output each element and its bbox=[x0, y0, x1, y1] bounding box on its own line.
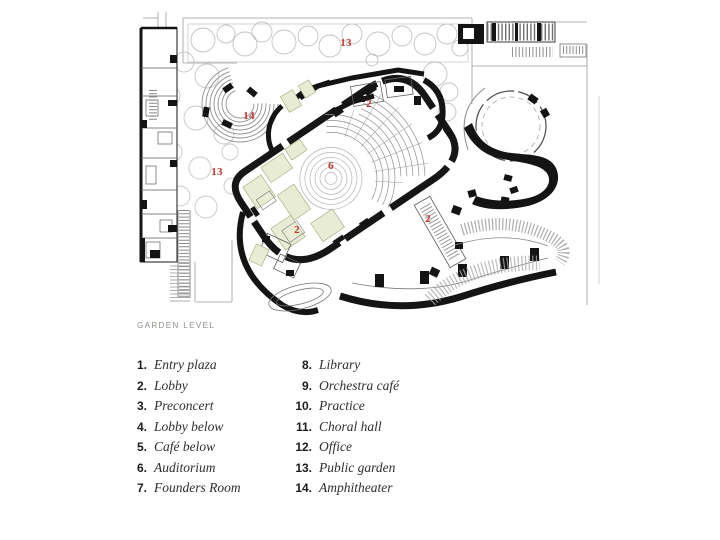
right-drum bbox=[464, 88, 558, 209]
legend-item-label: Choral hall bbox=[319, 419, 382, 435]
legend-item-number: 10. bbox=[288, 399, 312, 413]
legend-item-label: Founders Room bbox=[154, 480, 241, 496]
floor-plan-drawing bbox=[130, 10, 600, 335]
legend-item: 2.Lobby bbox=[130, 378, 290, 399]
stair-hatch bbox=[178, 210, 190, 302]
plan-number-label: 13 bbox=[340, 37, 352, 49]
top-right-structures bbox=[458, 22, 586, 57]
legend-item-label: Lobby bbox=[154, 378, 188, 394]
plan-number-label: 14 bbox=[243, 110, 255, 122]
legend-column-1: 1.Entry plaza 2.Lobby 3.Preconcert 4.Lob… bbox=[130, 357, 290, 501]
legend-item: 7.Founders Room bbox=[130, 480, 290, 501]
floor-plan: 13 2 14 13 6 2 2 bbox=[130, 10, 600, 335]
legend-item: 4.Lobby below bbox=[130, 419, 290, 440]
legend-item: 9.Orchestra café bbox=[288, 378, 458, 399]
legend-item-number: 8. bbox=[288, 358, 312, 372]
legend-item-label: Entry plaza bbox=[154, 357, 217, 373]
plan-number-label: 2 bbox=[294, 224, 300, 236]
legend-item-number: 7. bbox=[130, 481, 147, 495]
legend-item: 1.Entry plaza bbox=[130, 357, 290, 378]
legend-item-number: 13. bbox=[288, 461, 312, 475]
legend-item-label: Library bbox=[319, 357, 360, 373]
legend-item-number: 14. bbox=[288, 481, 312, 495]
legend-item: 12.Office bbox=[288, 439, 458, 460]
legend-item-number: 1. bbox=[130, 358, 147, 372]
auditorium-shape bbox=[200, 31, 487, 309]
legend-item: 5.Café below bbox=[130, 439, 290, 460]
legend-item-label: Office bbox=[319, 439, 352, 455]
legend-item-label: Lobby below bbox=[154, 419, 223, 435]
legend-item: 10.Practice bbox=[288, 398, 458, 419]
legend-item-number: 6. bbox=[130, 461, 147, 475]
legend-item-label: Public garden bbox=[319, 460, 395, 476]
legend-item: 14.Amphitheater bbox=[288, 480, 458, 501]
legend-column-2: 8.Library 9.Orchestra café 10.Practice 1… bbox=[288, 357, 458, 501]
legend-item: 13.Public garden bbox=[288, 460, 458, 481]
legend-item-number: 11. bbox=[288, 420, 312, 434]
legend-item-number: 3. bbox=[130, 399, 147, 413]
legend-item: 11.Choral hall bbox=[288, 419, 458, 440]
legend-item-label: Auditorium bbox=[154, 460, 216, 476]
level-title: GARDEN LEVEL bbox=[137, 321, 215, 330]
plan-number-label: 6 bbox=[328, 160, 334, 172]
left-building bbox=[141, 28, 177, 262]
legend-item: 6.Auditorium bbox=[130, 460, 290, 481]
legend-item-label: Practice bbox=[319, 398, 365, 414]
plan-number-label: 2 bbox=[425, 213, 431, 225]
legend-item-label: Orchestra café bbox=[319, 378, 399, 394]
slide: 13 2 14 13 6 2 2 GARDEN LEVEL 1.Entry pl… bbox=[0, 0, 720, 540]
legend-item-number: 5. bbox=[130, 440, 147, 454]
plan-number-label: 13 bbox=[211, 166, 223, 178]
legend-item-number: 4. bbox=[130, 420, 147, 434]
legend-item-number: 9. bbox=[288, 379, 312, 393]
plan-number-label: 2 bbox=[366, 98, 372, 110]
legend-item-number: 2. bbox=[130, 379, 147, 393]
bottom-walls bbox=[340, 224, 564, 306]
legend-item-number: 12. bbox=[288, 440, 312, 454]
legend-item: 8.Library bbox=[288, 357, 458, 378]
legend-item-label: Café below bbox=[154, 439, 215, 455]
legend-item: 3.Preconcert bbox=[130, 398, 290, 419]
legend-item-label: Preconcert bbox=[154, 398, 213, 414]
legend-item-label: Amphitheater bbox=[319, 480, 393, 496]
